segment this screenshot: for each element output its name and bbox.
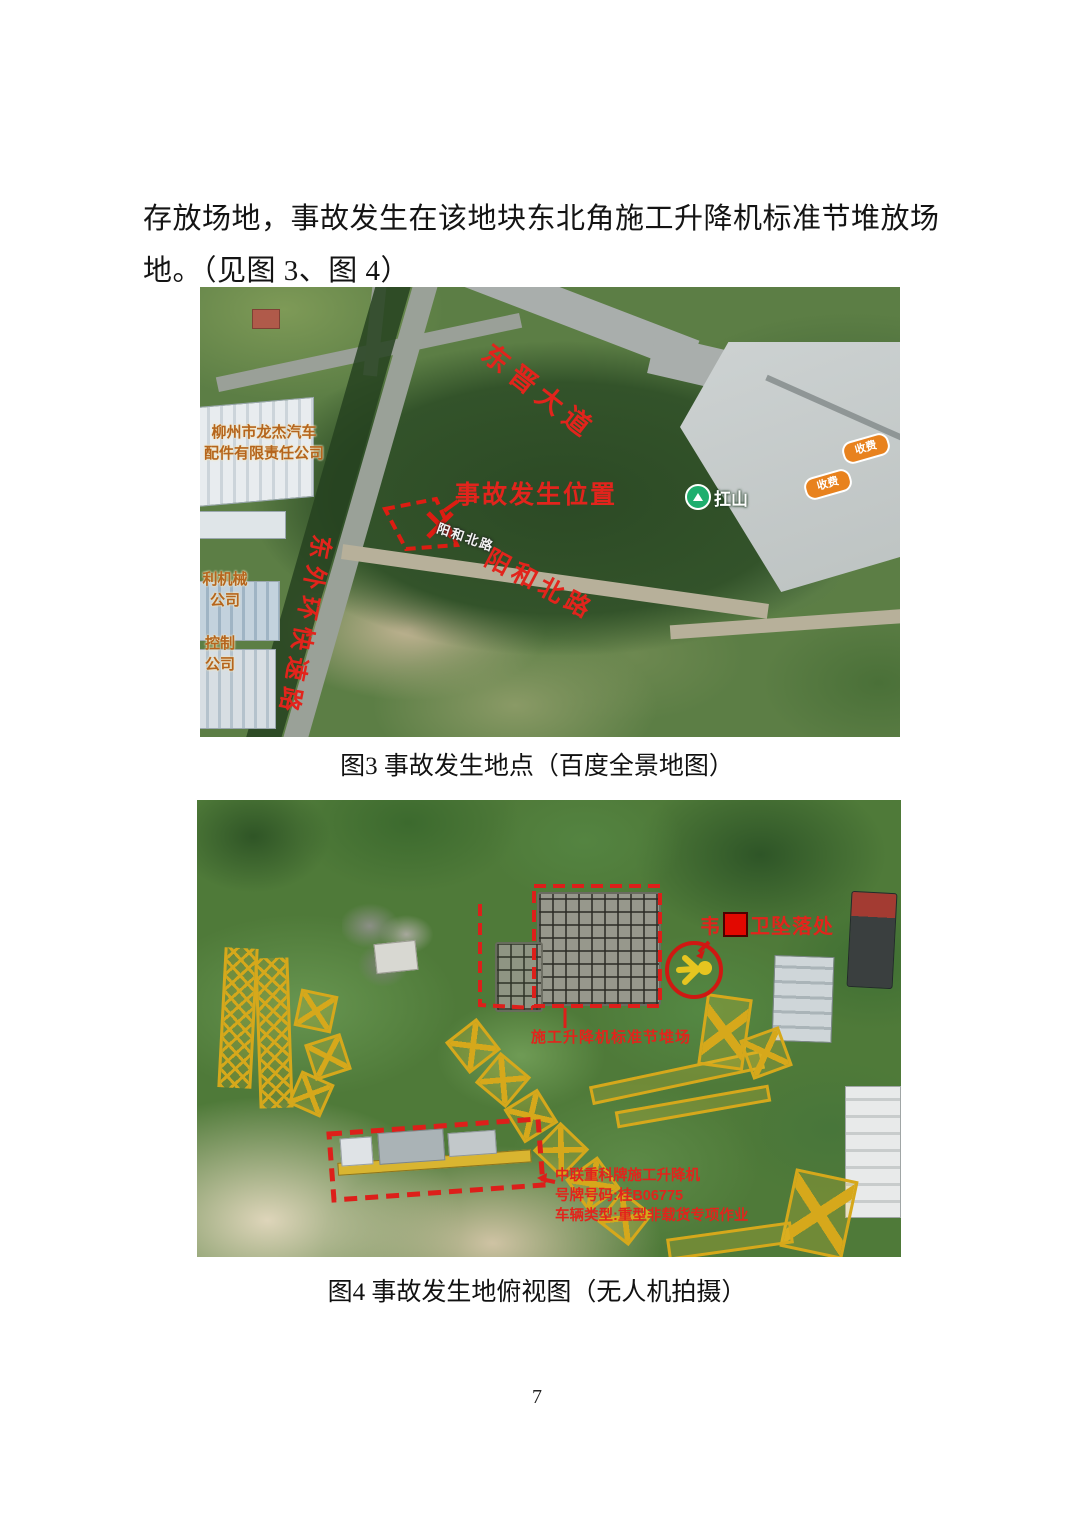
yanghe-north-road [670,609,900,640]
company-label-machinery: 利机械 公司 [200,569,258,611]
hoist-info-line3: 车辆类型:重型非载货专项作业 [555,1206,748,1226]
mountain-icon [693,493,703,501]
truck-machinery [448,1130,498,1157]
paragraph-line-1: 存放场地，事故发生在该地块东北角施工升降机标准节堆放场 [143,193,943,245]
factory-building [200,511,286,539]
road-label-dongjin-avenue: 东晋大道 [475,333,606,447]
figure4-caption: 图4 事故发生地俯视图（无人机拍摄） [0,1272,1074,1308]
figure3-caption: 图3 事故发生地点（百度全景地图） [0,746,1074,782]
truck-cab [340,1136,374,1166]
standard-section-stack [495,942,543,1012]
truck-machinery [377,1128,445,1165]
page-number: 7 [0,1386,1074,1409]
company-label-longjie: 柳州市龙杰汽车 配件有限责任公司 [202,422,326,464]
accident-position-label: 事故发生位置 [455,475,617,511]
hoist-info-line1: 中联重科牌施工升降机 [555,1166,748,1186]
company-label-line1: 柳州市龙杰汽车 [202,422,326,443]
fall-location-label: 韦 卫坠落处 [700,910,834,939]
mast-tower [217,947,258,1089]
small-shed [374,940,419,974]
mast-section [779,1168,858,1257]
figure3-satellite-map: 东晋大道 事故发生位置 阳和北路 阳和北路 东外环快速路 柳州市龙杰汽车 配件有… [200,287,900,737]
mountain-label: 扛山 [714,485,748,510]
hoist-info-line2: 号牌号码:桂B06775 [555,1186,748,1206]
redaction-square [723,912,748,937]
body-paragraph: 存放场地，事故发生在该地块东北角施工升降机标准节堆放场 地。（见图 3、图 4） [143,193,943,297]
company-label-line2: 配件有限责任公司 [202,443,326,464]
mast-tower [254,957,293,1108]
toll-plaza [680,342,900,592]
mast-section [287,1070,335,1118]
company-label-control: 控制 公司 [200,633,248,675]
mast-rail [666,1221,794,1257]
hoist-transport-truck [335,1119,535,1191]
container-shed [772,955,835,1043]
figure4-aerial-photo: 韦 卫坠落处 施工升降机标准节堆场 中联重科牌施工升降机 号牌号码:桂B0677… [197,800,901,1257]
stack-yard-label: 施工升降机标准节堆场 [531,1026,691,1047]
fall-label-prefix: 韦 [700,910,721,939]
truck [847,891,898,989]
fall-label-suffix: 卫坠落处 [750,910,834,939]
mountain-pin-icon [685,484,711,510]
document-page: 存放场地，事故发生在该地块东北角施工升降机标准节堆放场 地。（见图 3、图 4）… [0,0,1074,1520]
standard-section-stack [537,892,661,1006]
red-roof-house [252,309,280,329]
hoist-info-label: 中联重科牌施工升降机 号牌号码:桂B06775 车辆类型:重型非载货专项作业 [555,1166,748,1226]
mast-section [293,988,338,1033]
road-label-small: 阳和北路 [435,518,498,556]
